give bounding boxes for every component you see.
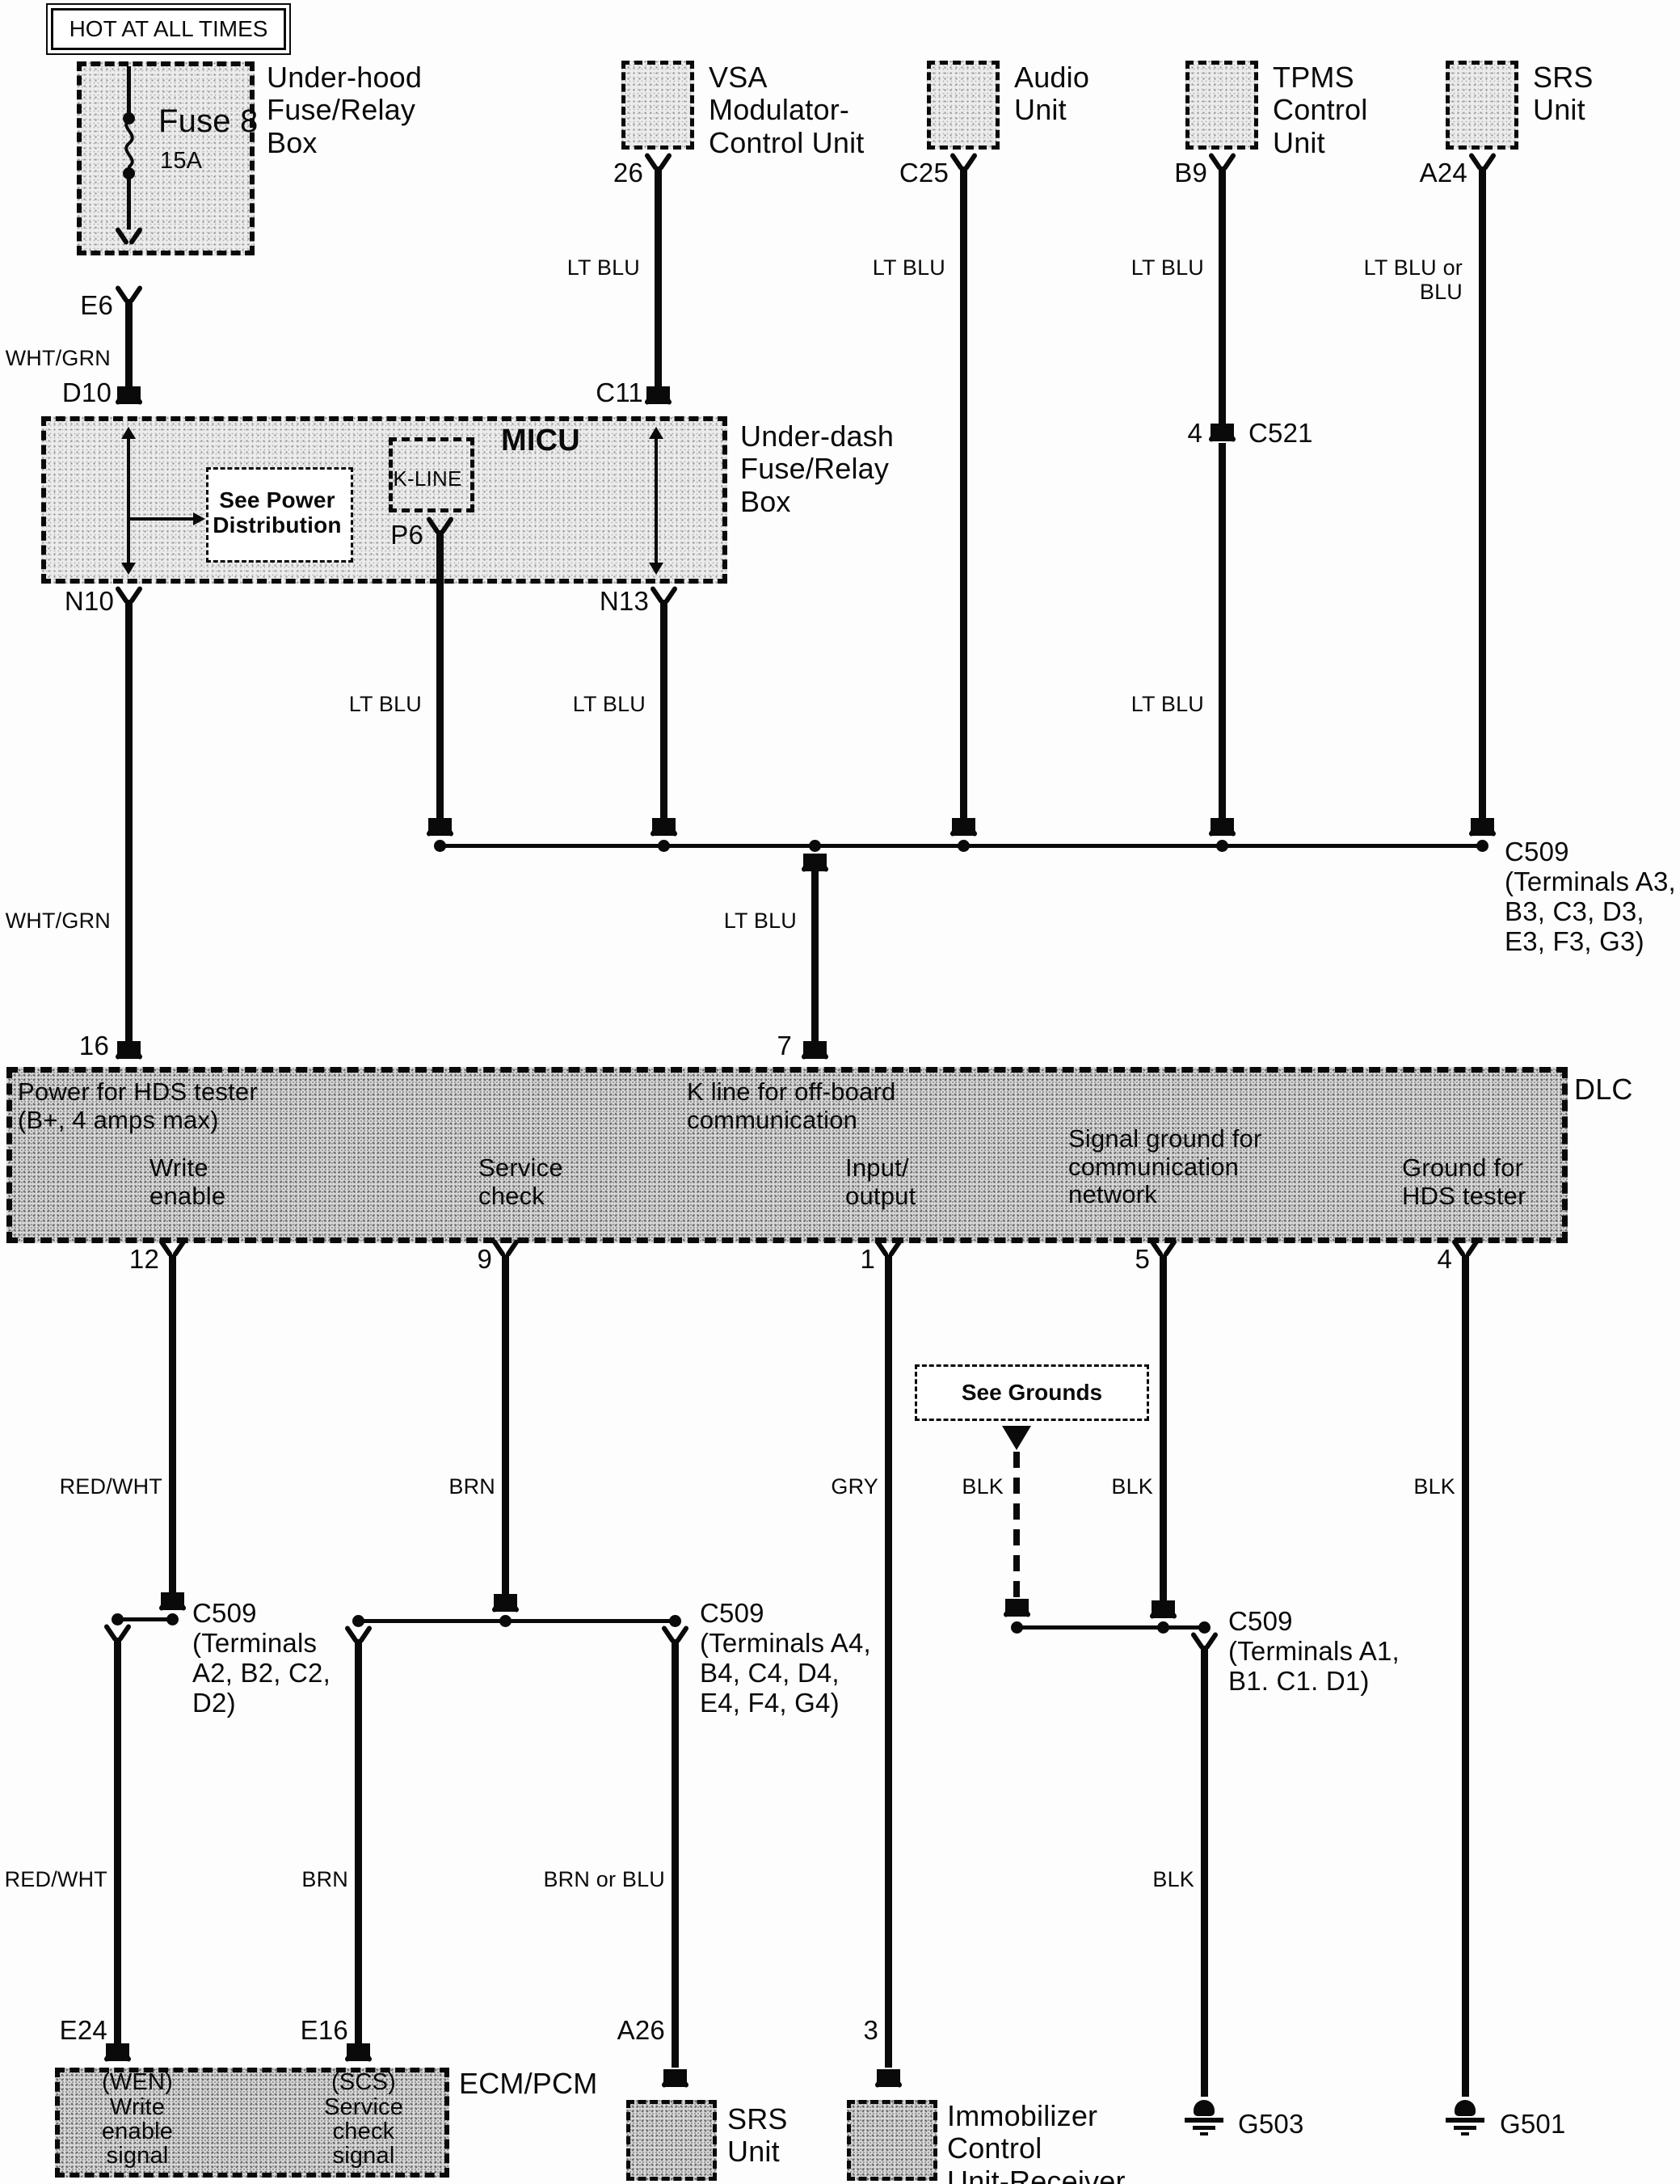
wire-color-brn-lower: BRN: [251, 1867, 348, 1891]
connector-icon: [652, 818, 676, 836]
pin-label-1: 1: [811, 1245, 875, 1275]
wire-color-lt-blu-p6: LT BLU: [317, 692, 422, 716]
arrow-down-icon: [649, 563, 663, 575]
connector-icon: [952, 818, 975, 836]
pin-label-9: 9: [427, 1245, 492, 1275]
see-grounds-label: See Grounds: [962, 1380, 1102, 1406]
junction-dot: [434, 840, 446, 852]
connector-icon-pin9: [494, 1238, 517, 1256]
see-power-label: See Power Distribution: [206, 467, 348, 558]
dlc-tag: DLC: [1574, 1073, 1633, 1106]
internal-line-left: [127, 436, 130, 566]
c509-right-label: C509 (Terminals A1, B1. C1. D1): [1228, 1607, 1400, 1697]
connector-icon-pin3: [877, 2069, 900, 2087]
wire-n10-dlc16: [125, 600, 133, 1041]
wire-color-blk-lower: BLK: [1097, 1867, 1194, 1891]
pin-label-c11: C11: [562, 378, 643, 408]
wire-e6-d10: [125, 299, 133, 388]
wire-audio-bus: [960, 167, 967, 818]
srs-top-label: SRS Unit: [1533, 61, 1594, 127]
dlc-signal-ground-label: Signal ground for communication network: [1068, 1125, 1262, 1209]
connector-icon-pin7: [803, 1041, 827, 1059]
immobilizer-label: Immobilizer Control Unit-Receiver: [947, 2100, 1126, 2184]
arrow-right-icon: [193, 512, 205, 525]
ecm-scs-label: (SCS) Service check signal: [291, 2074, 436, 2165]
wire-color-blk-4: BLK: [1358, 1474, 1455, 1499]
srs-bottom-label: SRS Unit: [727, 2103, 788, 2169]
fuse-label: Fuse 8: [158, 103, 259, 140]
wire-color-red-wht: RED/WHT: [33, 1474, 162, 1499]
wire-tpms-upper: [1219, 167, 1226, 427]
connector-icon-e16: [347, 2043, 370, 2061]
pin-label-12: 12: [95, 1245, 159, 1275]
ground-label-g501: G501: [1500, 2110, 1566, 2140]
wire-srs-bus: [1479, 167, 1486, 818]
dlc-ground-hds-label: Ground for HDS tester: [1402, 1154, 1526, 1210]
fuse-icon: [119, 120, 140, 173]
connector-icon-c11: [646, 386, 670, 404]
ecm-pcm-label: ECM/PCM: [459, 2068, 597, 2100]
dlc-input-output-label: Input/ output: [845, 1154, 916, 1210]
connector-icon-pin16: [117, 1041, 141, 1059]
grounds-arrow-icon: [1002, 1426, 1031, 1450]
pin-label-n13: N13: [568, 587, 649, 617]
pin-label-7: 7: [731, 1031, 792, 1061]
audio-unit-box: [927, 61, 1000, 150]
c521-label: C521: [1248, 419, 1313, 449]
pin-label-p6: P6: [359, 521, 423, 550]
c509-mid-label: C509 (Terminals A4, B4, C4, D4, E4, F4, …: [700, 1599, 871, 1718]
micu-label: MICU: [501, 424, 580, 458]
connector-icon: [117, 226, 141, 244]
pin-label-d10: D10: [31, 378, 112, 408]
k-line-label: K-LINE: [389, 459, 466, 500]
pin-label-n10: N10: [33, 587, 114, 617]
vsa-label: VSA Modulator- Control Unit: [709, 61, 864, 159]
wire-color-red-wht-lower: RED/WHT: [0, 1867, 107, 1891]
wire-color-wht-grn: WHT/GRN: [0, 346, 111, 370]
wire-pin5: [1160, 1254, 1167, 1602]
junction-dot: [1216, 840, 1228, 852]
dlc-service-check-label: Service check: [478, 1154, 563, 1210]
wire-color-blk-sg: BLK: [907, 1474, 1004, 1499]
arrow-down-icon: [121, 563, 136, 575]
underhood-box-label: Under-hood Fuse/Relay Box: [267, 61, 422, 159]
tpms-label: TPMS Control Unit: [1273, 61, 1367, 159]
fuse-amps: 15A: [160, 149, 202, 173]
junction-dot: [658, 840, 670, 852]
connector-icon-c521: [1211, 424, 1234, 441]
wire-g503: [1201, 1646, 1208, 2097]
pin-label-5: 5: [1085, 1245, 1150, 1275]
fuse-feed-wire-top: [127, 66, 131, 115]
ground-label-g503: G503: [1238, 2110, 1304, 2140]
internal-arrow-line: [130, 517, 195, 521]
junction-dot: [1476, 840, 1488, 852]
pin-label-e16: E16: [267, 2016, 348, 2046]
wire-vsa-c11: [655, 167, 662, 388]
wire-color-lt-blu-vsa: LT BLU: [535, 255, 640, 280]
ground-icon-g503: [1185, 2100, 1223, 2137]
underdash-fuse-box: [41, 416, 727, 584]
wire-pin4-g501: [1462, 1254, 1469, 2097]
junction-line-right: [1017, 1625, 1204, 1630]
wiring-diagram-canvas: HOT AT ALL TIMES See Grounds: [0, 0, 1680, 2184]
wire-e16: [355, 1639, 362, 2043]
wire-see-grounds: [1013, 1452, 1020, 1599]
hot-at-all-times-box: HOT AT ALL TIMES: [51, 8, 286, 50]
connector-icon: [428, 818, 452, 836]
connector-icon-pin5: [1152, 1238, 1175, 1256]
audio-label: Audio Unit: [1014, 61, 1089, 127]
pin-label-26: 26: [579, 158, 643, 188]
c509-bus-label: C509 (Terminals A3, B3, C3, D3, E3, F3, …: [1505, 837, 1676, 957]
pin-label-e24: E24: [27, 2016, 107, 2046]
wire-bus-dlc7: [811, 871, 819, 1041]
connector-icon: [494, 1594, 517, 1612]
connector-icon: [803, 854, 827, 871]
wire-a26: [672, 1639, 679, 2068]
srs-unit-box-bottom: [626, 2100, 717, 2181]
wire-pin1-immobilizer: [885, 1254, 892, 2068]
c509-left-label: C509 (Terminals A2, B2, C2, D2): [192, 1599, 331, 1718]
ecm-wen-label: (WEN) Write enable signal: [65, 2074, 210, 2165]
pin-label-a24: A24: [1387, 158, 1467, 188]
connector-icon: [1471, 818, 1494, 836]
wire-color-brn-or-blu: BRN or BLU: [520, 1867, 665, 1891]
wire-color-lt-blu-audio: LT BLU: [840, 255, 945, 280]
junction-dot: [958, 840, 970, 852]
connector-icon-a26: [663, 2069, 687, 2087]
dlc-k-line-label: K line for off-board communication: [687, 1078, 895, 1134]
see-grounds-box: See Grounds: [915, 1364, 1149, 1421]
junction-dot: [809, 840, 821, 852]
dlc-write-enable-label: Write enable: [149, 1154, 225, 1210]
wire-color-lt-blu-n13: LT BLU: [541, 692, 646, 716]
vsa-unit-box: [621, 61, 694, 150]
connector-icon: [161, 1592, 184, 1610]
tpms-unit-box: [1185, 61, 1258, 150]
junction-dot: [1011, 1621, 1023, 1634]
ground-icon-g501: [1446, 2100, 1484, 2137]
wire-color-lt-blu-or-blu: LT BLU or BLU: [1341, 255, 1463, 304]
wire-p6-bus: [436, 530, 444, 818]
immobilizer-box: [847, 2100, 937, 2181]
dlc-power-label: Power for HDS tester (B+, 4 amps max): [18, 1078, 258, 1134]
pin-label-e6: E6: [48, 291, 113, 321]
connector-icon-pin1: [877, 1238, 900, 1256]
wire-color-brn: BRN: [398, 1474, 495, 1499]
srs-unit-box-top: [1446, 61, 1518, 150]
pin-label-a26: A26: [584, 2016, 665, 2046]
wire-n13-bus: [660, 600, 667, 818]
connector-icon: [1005, 1599, 1029, 1617]
connector-icon-pin4: [1454, 1238, 1477, 1256]
pin-label-c25: C25: [868, 158, 949, 188]
pin-label-4: 4: [1387, 1245, 1452, 1275]
wire-color-lt-blu-tpms: LT BLU: [1099, 255, 1204, 280]
pin-label-b9: B9: [1143, 158, 1207, 188]
fuse-feed-wire-bottom: [127, 177, 131, 230]
pin-label-16: 16: [48, 1031, 109, 1061]
connector-icon-pin12: [161, 1238, 184, 1256]
junction-line-left: [117, 1617, 175, 1621]
connector-icon: [1211, 818, 1234, 836]
wire-color-gry: GRY: [781, 1474, 878, 1499]
pin-label-3: 3: [814, 2016, 878, 2046]
c521-pin-label: 4: [1138, 419, 1202, 449]
connector-icon: [1152, 1600, 1175, 1618]
wire-e24: [114, 1638, 121, 2043]
hot-note: HOT AT ALL TIMES: [69, 16, 268, 42]
connector-icon-d10: [117, 386, 141, 404]
wire-color-blk-5: BLK: [1056, 1474, 1153, 1499]
wire-pin12: [169, 1254, 176, 1594]
wire-color-wht-grn-lower: WHT/GRN: [0, 909, 111, 933]
connector-icon-e24: [106, 2043, 129, 2061]
wire-color-lt-blu-tpms-mid: LT BLU: [1099, 692, 1204, 716]
junction-line-mid: [358, 1619, 678, 1623]
wire-tpms-lower: [1219, 443, 1226, 818]
wire-pin9: [502, 1254, 509, 1596]
internal-line-right: [655, 436, 658, 566]
wire-color-lt-blu-drop: LT BLU: [692, 909, 797, 933]
underdash-box-label: Under-dash Fuse/Relay Box: [740, 420, 894, 518]
